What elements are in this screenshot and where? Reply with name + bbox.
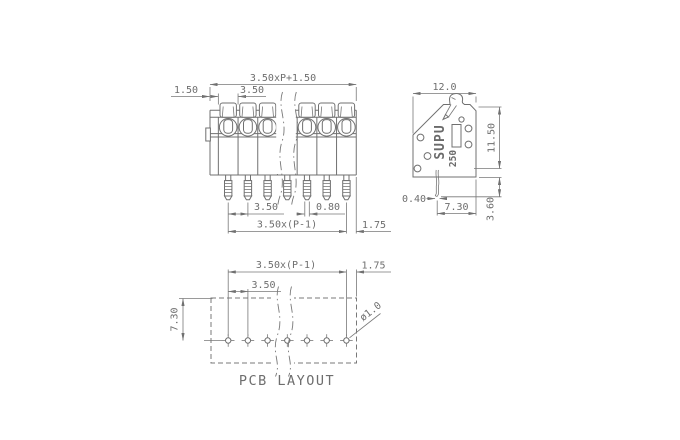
solder-pin bbox=[264, 175, 271, 200]
solder-pin bbox=[323, 175, 330, 200]
terminal-cell bbox=[259, 103, 277, 136]
solder-pin bbox=[343, 175, 350, 200]
technical-drawing: 3.50xP+1.50 1.50 3.50 3.50 0.80 3.50x(P bbox=[0, 0, 680, 440]
spring-clamp bbox=[263, 120, 272, 134]
pcb-layout-title: PCB LAYOUT bbox=[239, 373, 335, 389]
solder-pin bbox=[244, 175, 251, 200]
spring-clamp bbox=[303, 120, 312, 134]
lever-pivot-hole bbox=[459, 117, 464, 122]
pcb-hole bbox=[242, 334, 255, 347]
series-label: 250 bbox=[448, 150, 459, 167]
brand-label: SUPU bbox=[433, 124, 448, 159]
spring-clamp bbox=[322, 120, 331, 134]
release-lever bbox=[443, 98, 464, 123]
terminal-cell bbox=[298, 103, 316, 136]
pcb-hole bbox=[340, 334, 353, 347]
front-solder-pins bbox=[225, 175, 351, 200]
pcb-hole bbox=[301, 334, 314, 347]
dim-height-label: 11.50 bbox=[487, 123, 498, 153]
dim-pin-span-label: 3.50x(P-1) bbox=[257, 220, 317, 231]
dim-last-pin-edge-label: 1.75 bbox=[362, 220, 386, 231]
pcb-hole bbox=[320, 334, 333, 347]
dim-board-edge-margin-label: 1.75 bbox=[361, 260, 385, 271]
dim-pin-thickness-label: 0.40 bbox=[402, 194, 426, 205]
pcb-hole bbox=[281, 334, 294, 347]
side-view: SUPU 250 12.0 11.50 3.60 0.40 bbox=[402, 82, 502, 221]
solder-pin bbox=[225, 175, 232, 200]
pcb-hole bbox=[261, 334, 274, 347]
drawing-canvas: 3.50xP+1.50 1.50 3.50 3.50 0.80 3.50x(P bbox=[0, 0, 680, 440]
dim-depth-label: 12.0 bbox=[432, 82, 456, 93]
terminal-cell bbox=[318, 103, 336, 136]
pcb-hole bbox=[222, 334, 235, 347]
spring-clamp bbox=[342, 120, 351, 134]
spring-clamp bbox=[244, 120, 253, 134]
dim-pin-length-label: 3.60 bbox=[486, 197, 497, 221]
side-slot bbox=[452, 125, 461, 148]
dim-pin-to-back-label: 7.30 bbox=[444, 202, 468, 213]
dim-pin-width-label: 0.80 bbox=[316, 202, 340, 213]
front-side-tab bbox=[206, 128, 211, 141]
solder-pin bbox=[284, 175, 291, 200]
dim-row-offset-label: 7.30 bbox=[170, 307, 181, 331]
side-solder-pin bbox=[435, 170, 439, 197]
spring-clamp bbox=[224, 120, 233, 134]
pcb-layout-view: 3.50x(P-1) 1.75 3.50 7.30 ø1.0 PCB LAYOU… bbox=[170, 260, 392, 389]
pcb-holes bbox=[222, 334, 353, 347]
front-view: 3.50xP+1.50 1.50 3.50 3.50 0.80 3.50x(P bbox=[171, 73, 391, 234]
solder-pin bbox=[303, 175, 310, 200]
dim-pitch-bottom-label: 3.50 bbox=[254, 202, 278, 213]
dim-total-width-label: 3.50xP+1.50 bbox=[250, 73, 316, 84]
pcb-board-outline bbox=[211, 298, 357, 363]
terminal-cell bbox=[239, 103, 257, 136]
dim-hole-pitch-label: 3.50 bbox=[251, 280, 275, 291]
dim-pitch-top-label: 3.50 bbox=[240, 85, 264, 96]
dim-edge-margin-label: 1.50 bbox=[174, 85, 198, 96]
terminal-cell bbox=[219, 103, 237, 136]
dim-hole-diameter-label: ø1.0 bbox=[358, 300, 384, 324]
dim-hole-span-label: 3.50x(P-1) bbox=[256, 260, 316, 271]
terminal-cell bbox=[338, 103, 356, 136]
